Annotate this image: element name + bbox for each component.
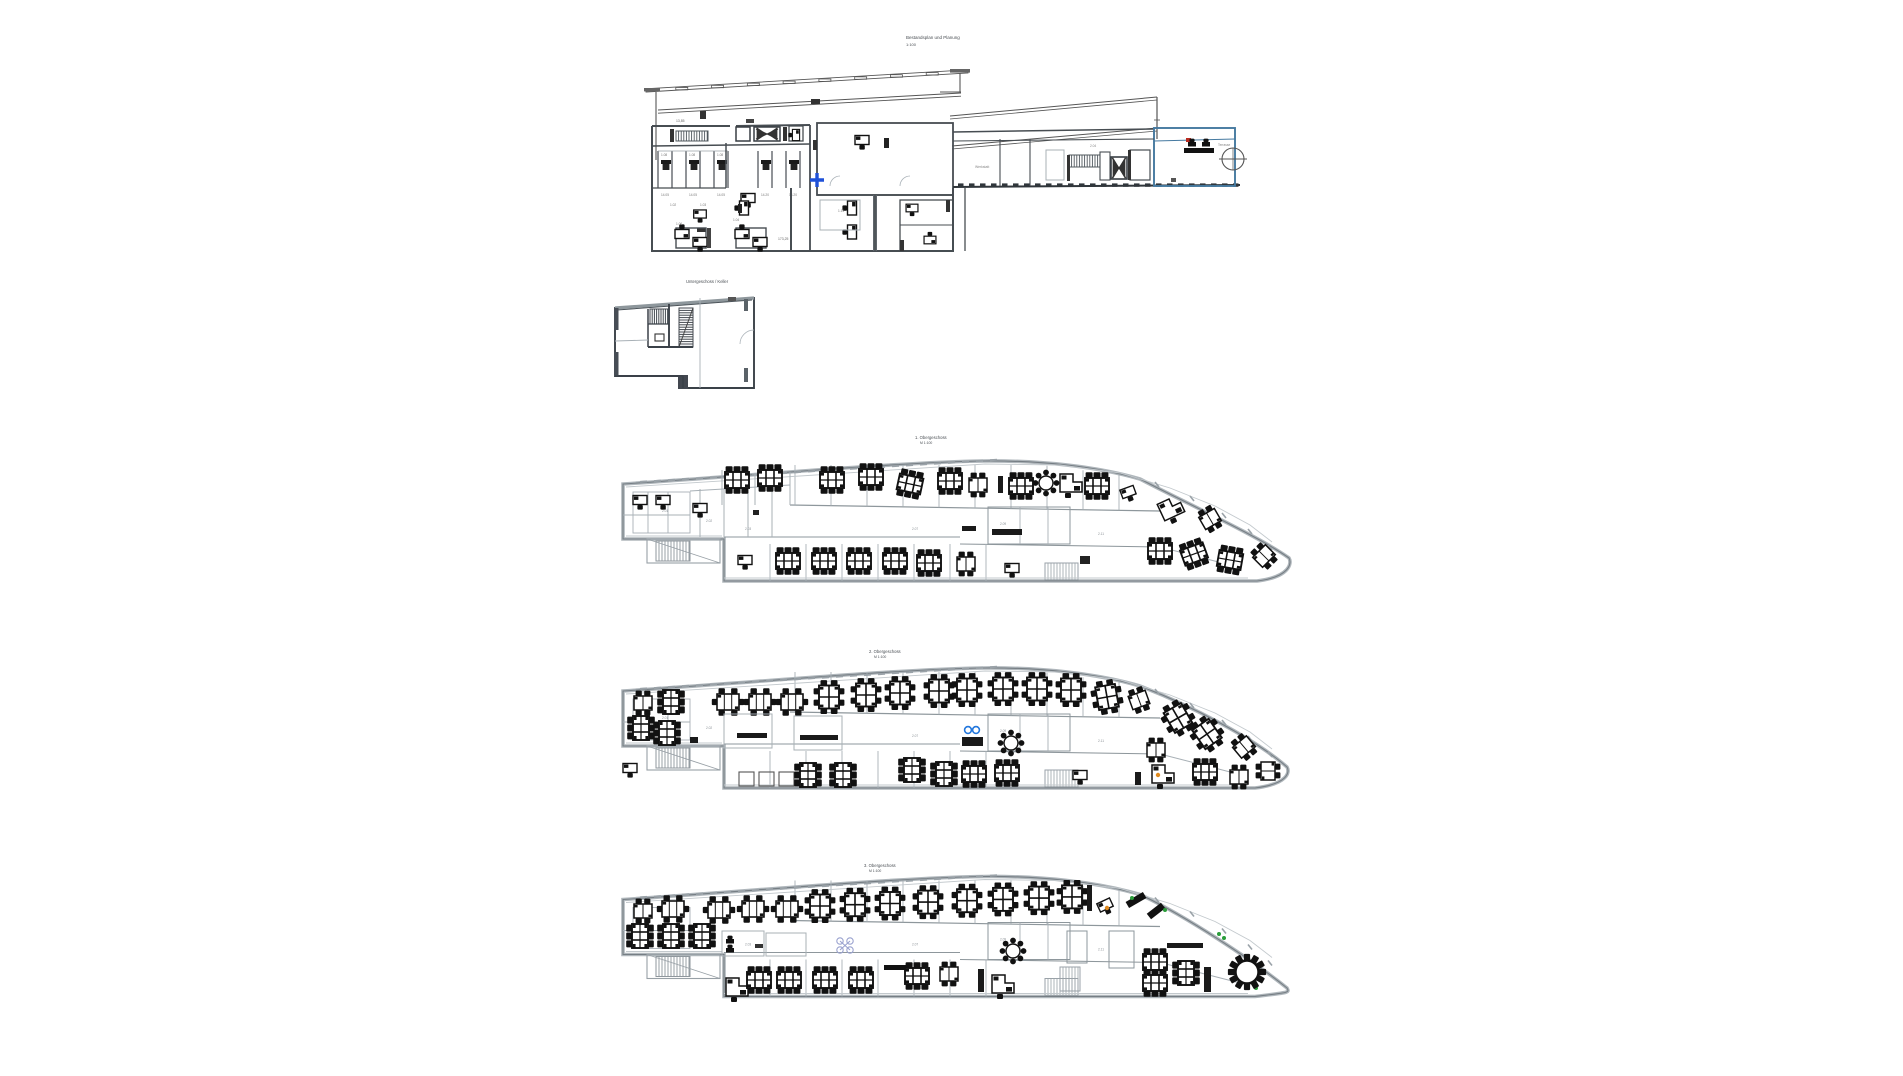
svg-text:14.20: 14.20: [761, 193, 769, 197]
svg-text:2.07: 2.07: [912, 527, 918, 531]
svg-text:2.11: 2.11: [1098, 948, 1104, 952]
svg-text:2.11: 2.11: [1098, 532, 1104, 536]
svg-text:2.01: 2.01: [662, 509, 668, 513]
svg-text:1.08: 1.08: [661, 153, 667, 157]
svg-text:14.05: 14.05: [661, 193, 669, 197]
svg-text:14.05: 14.05: [717, 193, 725, 197]
svg-text:1.06: 1.06: [676, 222, 682, 226]
svg-text:M 1:100: M 1:100: [920, 441, 932, 445]
svg-text:1:100: 1:100: [906, 42, 917, 47]
svg-text:2.09: 2.09: [1000, 729, 1006, 733]
svg-text:M 1:100: M 1:100: [874, 655, 886, 659]
svg-text:2.07: 2.07: [912, 734, 918, 738]
svg-text:Werkstatt: Werkstatt: [975, 165, 989, 169]
svg-text:2. Obergeschoss: 2. Obergeschoss: [869, 649, 901, 654]
svg-text:1.11: 1.11: [838, 209, 844, 213]
svg-text:14.05: 14.05: [689, 193, 697, 197]
svg-text:13,85: 13,85: [676, 119, 685, 123]
svg-text:M 1:100: M 1:100: [869, 869, 881, 873]
svg-text:2.11: 2.11: [1098, 739, 1104, 743]
svg-text:Untergeschoss / Keller: Untergeschoss / Keller: [686, 279, 729, 284]
svg-text:3. Obergeschoss: 3. Obergeschoss: [864, 863, 896, 868]
svg-text:Terrasse: Terrasse: [1218, 143, 1230, 147]
svg-text:1.08: 1.08: [717, 153, 723, 157]
svg-text:1.02: 1.02: [670, 203, 676, 207]
svg-text:1.08: 1.08: [689, 153, 695, 157]
svg-text:Bestandsplan und Planung: Bestandsplan und Planung: [906, 35, 960, 40]
svg-text:2.02: 2.02: [706, 519, 712, 523]
svg-text:1.04: 1.04: [733, 218, 739, 222]
svg-text:2.01: 2.01: [662, 716, 668, 720]
svg-text:1.03: 1.03: [700, 203, 706, 207]
svg-text:173,25: 173,25: [778, 237, 788, 241]
svg-text:2.04: 2.04: [1090, 144, 1096, 148]
svg-text:2.03: 2.03: [745, 943, 751, 947]
svg-text:2.07: 2.07: [912, 943, 918, 947]
svg-text:2.02: 2.02: [706, 726, 712, 730]
svg-text:2.09: 2.09: [1000, 522, 1006, 526]
svg-text:1. Obergeschoss: 1. Obergeschoss: [915, 435, 947, 440]
